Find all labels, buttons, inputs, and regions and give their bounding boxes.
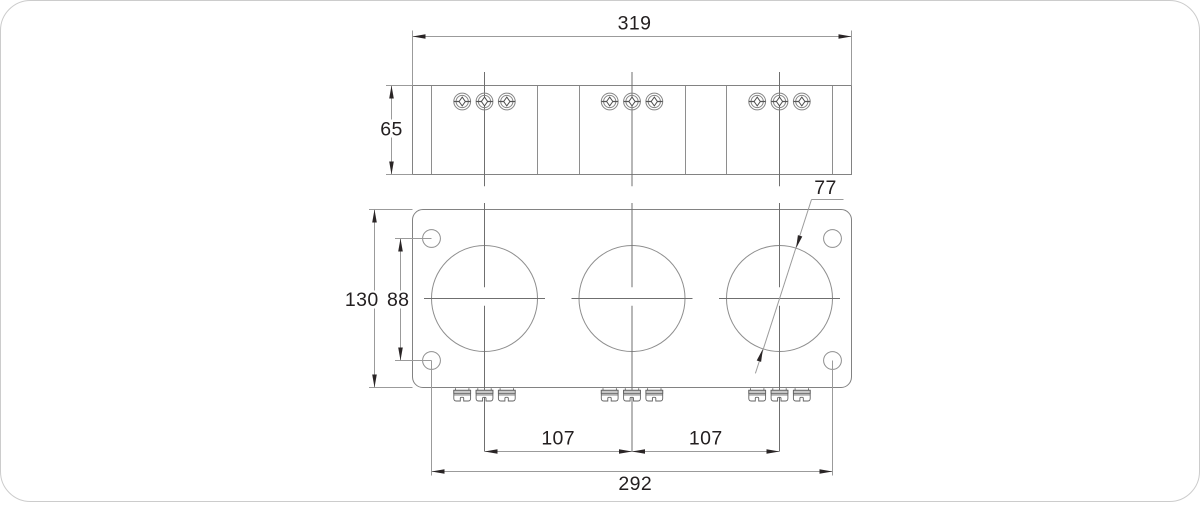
svg-text:107: 107 <box>689 427 723 449</box>
svg-text:292: 292 <box>618 473 652 495</box>
svg-text:319: 319 <box>618 13 652 35</box>
svg-text:107: 107 <box>541 427 575 449</box>
svg-text:88: 88 <box>387 289 410 311</box>
svg-text:130: 130 <box>345 289 379 311</box>
svg-text:65: 65 <box>380 119 403 141</box>
svg-text:77: 77 <box>814 177 837 199</box>
